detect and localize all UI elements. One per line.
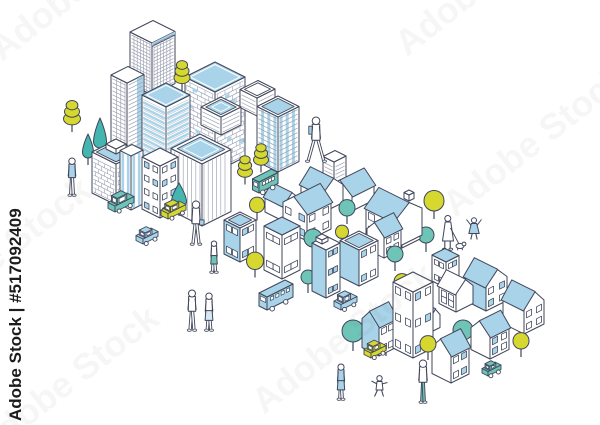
svg-text:Adobe Stock: Adobe Stock <box>435 56 600 224</box>
svg-text:Adobe Stock | #517092409: Adobe Stock | #517092409 <box>6 208 25 421</box>
svg-text:Adobe Stock: Adobe Stock <box>0 296 167 425</box>
svg-text:Adobe Stock: Adobe Stock <box>387 0 586 63</box>
